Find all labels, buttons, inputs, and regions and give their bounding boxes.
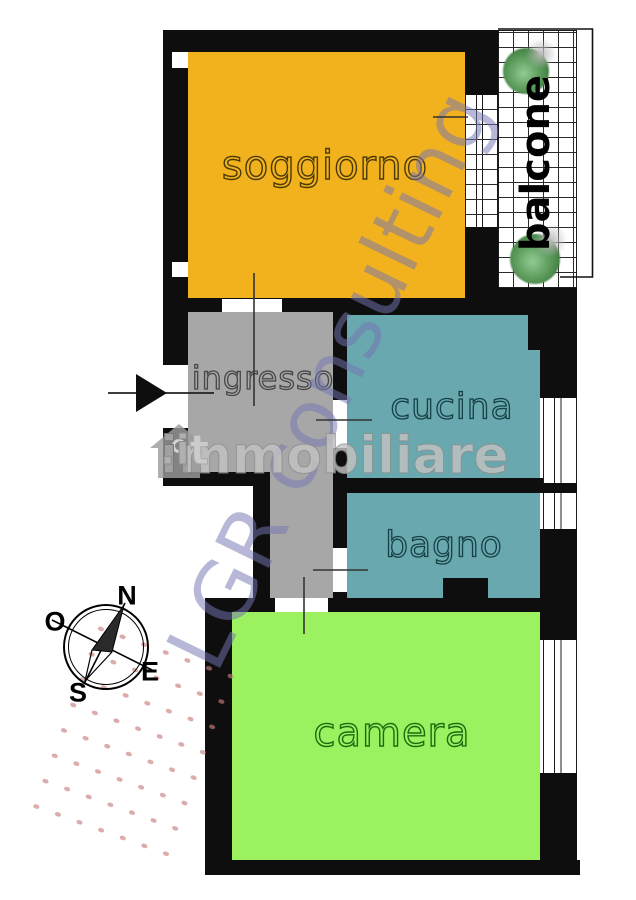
window-camera xyxy=(543,640,577,773)
wall-notch xyxy=(172,52,188,68)
door-opening-soggiorno xyxy=(222,299,282,312)
compass-west-label: O xyxy=(44,607,65,638)
wall xyxy=(528,315,577,350)
wall xyxy=(498,288,577,315)
window-cucina xyxy=(543,398,577,483)
wall xyxy=(465,52,498,95)
wall xyxy=(540,483,577,493)
window-bagno xyxy=(543,493,577,529)
wall xyxy=(540,350,577,398)
compass-south-label: S xyxy=(69,678,87,709)
wall xyxy=(540,529,577,598)
door-opening-bagno xyxy=(333,548,347,592)
label-bagno: bagno xyxy=(385,525,503,566)
wall xyxy=(540,612,577,640)
wall xyxy=(328,598,577,612)
wall xyxy=(163,30,498,52)
wall-pillar xyxy=(443,578,488,598)
compass-north-label: N xyxy=(117,581,137,612)
portal-watermark: immobiliare.it xyxy=(140,418,480,488)
compass-east-label: E xyxy=(141,657,159,688)
label-camera: camera xyxy=(313,710,470,756)
floor-plan: soggiorno ingresso cucina bagno camera b… xyxy=(0,0,636,900)
portal-watermark-tld: .it xyxy=(160,426,209,474)
label-balcone: balcone xyxy=(513,75,559,251)
wall xyxy=(540,773,577,860)
wall-notch xyxy=(172,262,188,277)
wall xyxy=(205,860,580,875)
